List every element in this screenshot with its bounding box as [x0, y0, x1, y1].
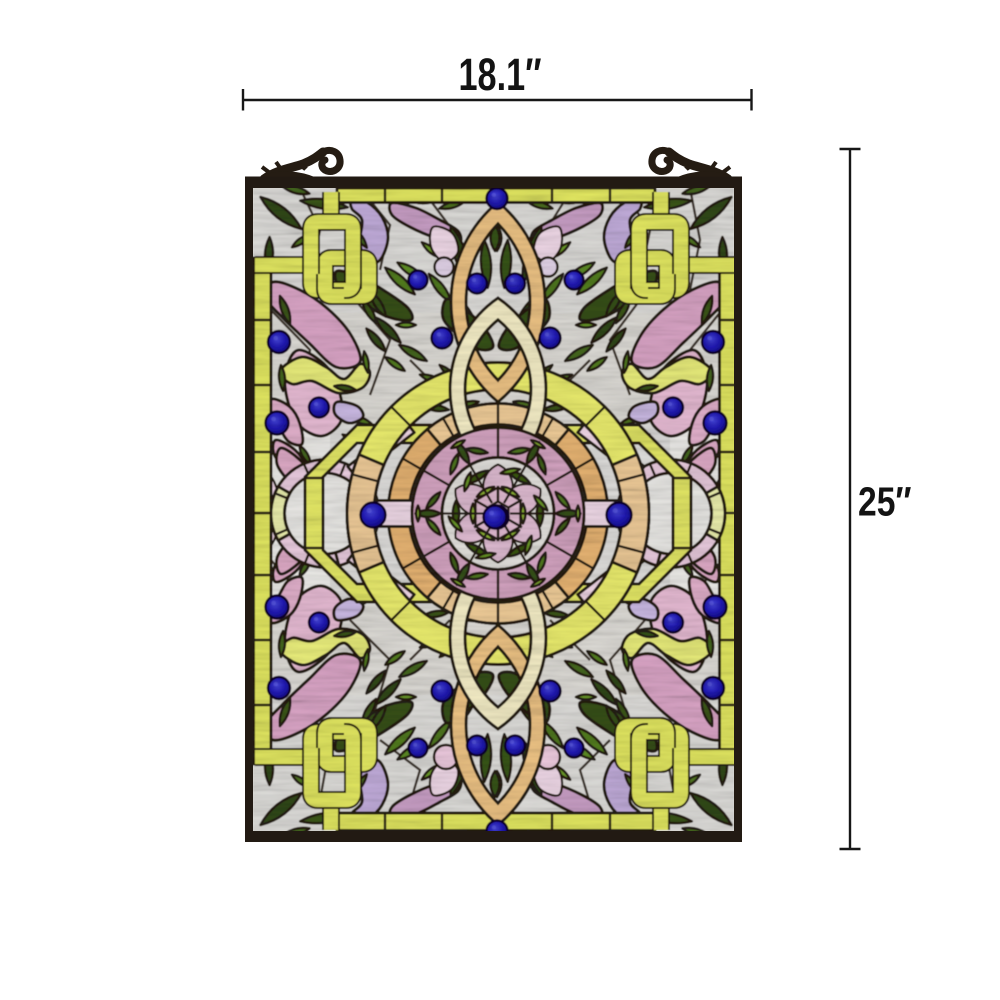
svg-text:25″: 25″ — [858, 478, 912, 524]
svg-text:18.1″: 18.1″ — [459, 51, 542, 101]
